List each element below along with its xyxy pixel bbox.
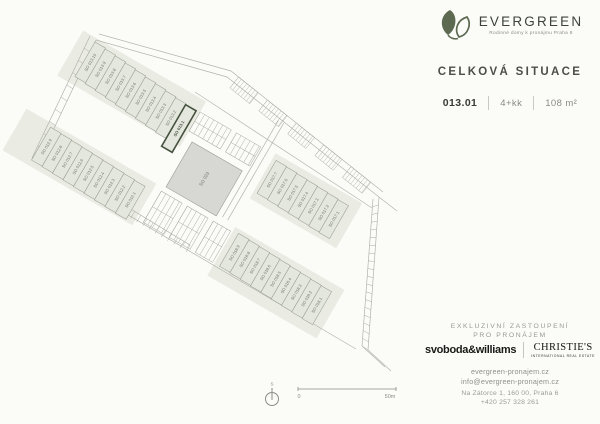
evergreen-leaf-icon	[437, 8, 473, 42]
svg-text:50m: 50m	[385, 394, 396, 400]
email-link[interactable]: info@evergreen-pronajem.cz	[420, 377, 600, 387]
svg-text:S: S	[270, 382, 273, 387]
brochure-page: SO 023SO 013.10SO 013.9SO 013.8SO 013.7S…	[0, 0, 600, 424]
svg-text:0: 0	[297, 394, 300, 400]
plan-content: SO 023SO 013.10SO 013.9SO 013.8SO 013.7S…	[26, 21, 393, 326]
exclusivity-line2: PRO PRONÁJEM	[420, 331, 600, 340]
brand-logo: EVERGREEN Rodinné domy k pronájmu Praha …	[420, 8, 600, 42]
separator	[488, 96, 489, 110]
info-panel: EVERGREEN Rodinné domy k pronájmu Praha …	[420, 0, 600, 424]
unit-info: 013.01 4+kk 108 m²	[420, 96, 600, 110]
brand-text: EVERGREEN Rodinné domy k pronájmu Praha …	[479, 14, 584, 36]
unit-layout: 4+kk	[500, 98, 522, 109]
unit-id: 013.01	[443, 97, 478, 109]
brand-tagline: Rodinné domy k pronájmu Praha 8	[489, 31, 572, 36]
page-title: CELKOVÁ SITUACE	[420, 66, 600, 78]
phone-number: +420 257 328 261	[420, 399, 600, 408]
address-block: Na Zátorce 1, 160 00, Praha 6 +420 257 3…	[420, 390, 600, 407]
website-link[interactable]: evergreen-pronajem.cz	[420, 367, 600, 377]
unit-area: 108 m²	[545, 98, 577, 109]
christies-wordmark: CHRISTIE'S	[534, 342, 593, 353]
logo-divider	[523, 342, 524, 358]
address-line: Na Zátorce 1, 160 00, Praha 6	[420, 390, 600, 399]
svoboda-williams-logo: svoboda&williams	[425, 344, 516, 356]
exclusivity-label: EXKLUZIVNÍ ZASTOUPENÍ PRO PRONÁJEM	[420, 322, 600, 340]
broker-logos: svoboda&williams CHRISTIE'S INTERNATIONA…	[420, 342, 600, 358]
contact-links: evergreen-pronajem.cz info@evergreen-pro…	[420, 367, 600, 386]
christies-logo: CHRISTIE'S INTERNATIONAL REAL ESTATE	[531, 342, 595, 358]
north-indicator: S	[266, 382, 279, 406]
scale-bar: 050m	[297, 387, 396, 400]
site-plan[interactable]: SO 023SO 013.10SO 013.9SO 013.8SO 013.7S…	[0, 0, 420, 424]
brand-name: EVERGREEN	[479, 14, 584, 29]
exclusivity-line1: EXKLUZIVNÍ ZASTOUPENÍ	[420, 322, 600, 331]
christies-subtitle: INTERNATIONAL REAL ESTATE	[531, 354, 595, 358]
separator	[533, 96, 534, 110]
